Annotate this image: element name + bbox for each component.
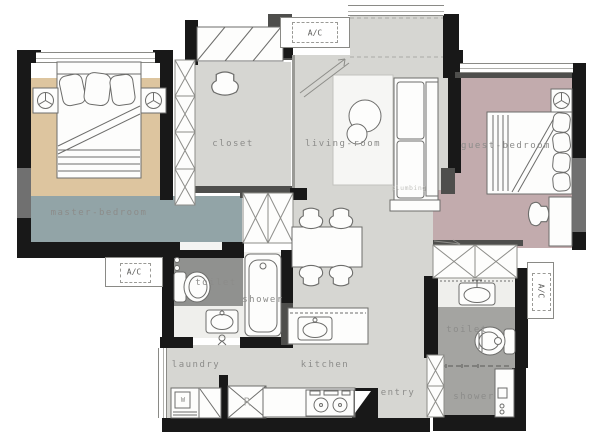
wall	[424, 276, 438, 358]
wall	[162, 418, 430, 432]
room-label-kitchen: kitchen	[301, 360, 349, 370]
annotation-plumbing: plumbing	[391, 184, 426, 192]
wall	[240, 190, 295, 198]
wall	[433, 240, 523, 246]
ac-label: A/C	[536, 283, 545, 297]
wall	[433, 415, 526, 431]
closet-floor	[195, 62, 291, 190]
room-label-guest-bedroom: guest-bedroom	[461, 141, 551, 151]
ac-unit-left: A/C	[105, 257, 163, 287]
floor-plan: A/C A/C A/C master-bedroom closet living…	[0, 0, 600, 433]
wall-window-right	[572, 158, 586, 238]
vanity-second-floor	[438, 276, 515, 307]
ac-unit-top: A/C	[280, 17, 350, 48]
wall	[433, 270, 518, 277]
wall	[515, 268, 527, 303]
closet-wardrobe	[175, 60, 195, 205]
room-label-toilet-main: toilet	[195, 278, 237, 288]
fridge-label: R	[244, 396, 251, 409]
wall	[17, 50, 31, 170]
room-label-shower-main: shower	[242, 295, 284, 305]
wall	[162, 252, 174, 338]
wall	[185, 20, 198, 65]
window-guest-top	[460, 63, 573, 73]
kitchen-laundry-entry-floor	[165, 345, 428, 419]
wall	[219, 375, 228, 419]
entry-door-block	[352, 388, 378, 418]
guest-bedroom-floor	[455, 78, 572, 248]
window-master-top	[36, 52, 155, 63]
wall	[222, 242, 244, 250]
wall	[448, 76, 461, 173]
wall	[572, 63, 586, 162]
dining-hall-floor	[293, 188, 433, 348]
washer-label: W	[181, 396, 185, 404]
wall	[160, 337, 193, 348]
room-label-toilet-second: toilet	[446, 325, 488, 335]
wall-thin	[292, 55, 295, 188]
room-label-living-room: living-room	[305, 139, 381, 149]
room-label-closet: closet	[212, 139, 254, 149]
room-label-entry: entry	[381, 388, 416, 398]
wall	[281, 303, 293, 345]
wall	[17, 242, 180, 258]
closet-lower-wardrobe	[243, 193, 293, 243]
master-bedroom-floor	[30, 196, 242, 245]
room-label-shower-second: shower	[453, 392, 495, 402]
wall-window-left	[17, 168, 31, 218]
room-label-laundry: laundry	[172, 360, 220, 370]
wall	[512, 368, 526, 418]
wall	[441, 168, 455, 194]
balcony-floor	[350, 14, 443, 60]
ac-unit-right: A/C	[527, 262, 554, 319]
window-laundry-left	[158, 348, 167, 418]
wall	[290, 188, 307, 200]
room-label-master-bedroom: master-bedroom	[51, 208, 148, 218]
toilet-second-floor	[438, 307, 515, 369]
master-door-gap	[180, 242, 222, 250]
master-bedroom-rug	[30, 78, 162, 198]
ac-label: A/C	[308, 28, 322, 37]
wall	[572, 232, 586, 250]
wall	[180, 250, 244, 258]
wall	[160, 50, 173, 200]
ac-label: A/C	[127, 268, 141, 277]
toilet-main-sink-floor	[174, 306, 243, 338]
window-balcony-top	[348, 5, 444, 16]
